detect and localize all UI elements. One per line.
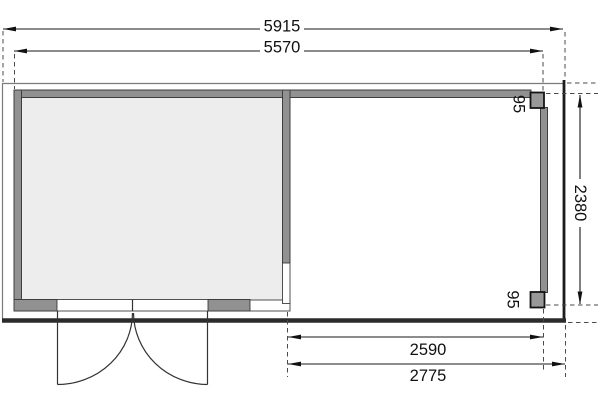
door-swing-left <box>58 313 133 385</box>
dim-label-post-top: 95 <box>510 95 528 113</box>
dim-label-cabin-width: 5570 <box>264 39 301 57</box>
canopy-beam-right <box>541 108 548 293</box>
canopy-beam-top <box>290 90 531 98</box>
arrowhead <box>530 335 543 340</box>
arrowhead <box>578 95 583 108</box>
post-bottom-right <box>531 292 545 308</box>
floor-plan: 5915 5570 2590 2775 2380 95 95 <box>0 0 600 400</box>
arrowhead <box>530 49 543 54</box>
side-window-opening <box>283 263 291 304</box>
arrowhead <box>288 362 301 367</box>
arrowhead <box>14 49 27 54</box>
floor-plan-drawing: 5915 5570 2590 2775 2380 95 95 <box>0 0 600 400</box>
cabin-wall-left <box>14 90 22 311</box>
post-top-right <box>531 93 545 109</box>
cabin-wall-top <box>14 90 290 98</box>
arrowhead <box>3 27 16 32</box>
cabin-room <box>14 90 290 311</box>
cabin-wall-bottom-mid <box>208 300 250 312</box>
arrowhead <box>578 292 583 305</box>
dim-label-overall-depth: 2380 <box>571 185 589 222</box>
dim-label-annex-inner: 2590 <box>410 341 447 359</box>
arrowhead <box>288 335 301 340</box>
arrowhead <box>550 27 563 32</box>
dim-label-post-bottom: 95 <box>504 290 522 308</box>
door-swing-right <box>134 313 208 385</box>
cabin-wall-right <box>283 90 291 263</box>
cabin-wall-bottom-left <box>14 300 57 312</box>
dim-label-annex-outer: 2775 <box>410 367 447 385</box>
dim-label-overall-width: 5915 <box>264 18 301 36</box>
arrowhead <box>552 362 565 367</box>
